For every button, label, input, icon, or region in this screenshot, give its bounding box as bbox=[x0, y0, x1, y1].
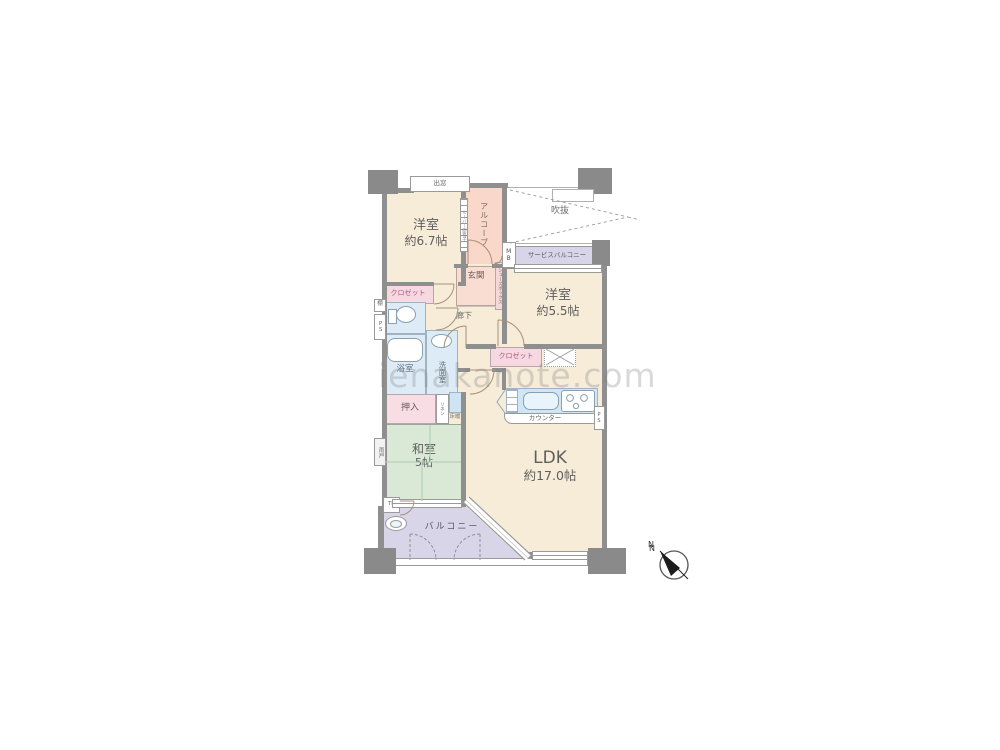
pillar-bottom-left bbox=[364, 548, 396, 574]
pipe-space-left-label: PS bbox=[377, 317, 384, 337]
wall-w55-left bbox=[502, 268, 507, 344]
japanese-room-size: 5帖 bbox=[388, 456, 460, 469]
alcove-label: アルコーブ bbox=[479, 196, 489, 252]
wall-w55-bottom-left bbox=[466, 344, 496, 349]
ldk-name: LDK bbox=[508, 448, 592, 468]
louver-window-label: ルーバー面格子 bbox=[461, 200, 466, 252]
entrance-step-line bbox=[456, 306, 496, 307]
void-notch bbox=[552, 189, 594, 202]
ldk-south-window bbox=[532, 551, 588, 560]
washroom-sink bbox=[431, 334, 452, 348]
futon-closet-label: 押入 bbox=[384, 403, 436, 414]
service-balcony-label: サービスバルコニー bbox=[516, 252, 598, 260]
counter-label: カウンター bbox=[510, 415, 580, 423]
wall-westroom-bottom-a bbox=[382, 282, 434, 286]
shoe-box-label: シューズボックス bbox=[497, 264, 502, 308]
closet-west-label: クロゼット bbox=[382, 289, 434, 297]
ldk-size: 約17.0帖 bbox=[508, 468, 592, 483]
entrance-label: 玄関 bbox=[458, 271, 494, 281]
japanese-room-window bbox=[392, 499, 462, 508]
ldk-label: LDK 約17.0帖 bbox=[508, 448, 592, 483]
bay-window-label: 出窓 bbox=[410, 180, 470, 188]
storm-shutter-label: 雨戸 bbox=[377, 441, 384, 463]
watermark: ienakanote.com bbox=[378, 356, 624, 395]
western-5-5-label: 洋室 約5.5帖 bbox=[526, 288, 590, 318]
floor-plan: アルコーブ 吹抜 サービスバルコニー MB 出窓 洋室 約6.7帖 ルーバー面格… bbox=[0, 0, 1000, 750]
western-6-7-size: 約6.7帖 bbox=[388, 234, 464, 248]
western-6-7-label: 洋室 約6.7帖 bbox=[388, 218, 464, 248]
western-5-5-size: 約5.5帖 bbox=[526, 304, 590, 318]
shelf-label: 棚 bbox=[374, 301, 386, 308]
japanese-room-label: 和室 5帖 bbox=[388, 442, 460, 470]
hallway-label: 廊下 bbox=[450, 311, 478, 321]
western-5-5-name: 洋室 bbox=[526, 288, 590, 304]
wall-w55-bottom-right bbox=[524, 344, 604, 349]
wall-entrance-left-seg bbox=[454, 264, 468, 268]
japanese-room-name: 和室 bbox=[388, 442, 460, 456]
wall-washitsu-ldk bbox=[461, 392, 466, 506]
balcony-label: バルコニー bbox=[414, 522, 490, 533]
void-label: 吹抜 bbox=[544, 206, 576, 217]
toilet-bowl bbox=[396, 306, 416, 323]
balcony-sink-basin bbox=[390, 520, 402, 528]
floor-heating-label: 床暖 bbox=[441, 414, 469, 421]
pipe-space-kitchen-label: PS bbox=[596, 409, 602, 427]
pillar-bottom-right bbox=[588, 548, 626, 574]
pillar-top-left bbox=[368, 170, 398, 194]
service-balcony-window bbox=[514, 264, 602, 273]
wall-alcove-right bbox=[502, 186, 507, 244]
wall-right bbox=[602, 246, 607, 560]
compass-north-label: N bbox=[646, 540, 656, 550]
western-6-7-name: 洋室 bbox=[388, 218, 464, 234]
wall-westroom-bottom-b bbox=[458, 282, 466, 286]
meter-box-label: MB bbox=[505, 245, 512, 265]
